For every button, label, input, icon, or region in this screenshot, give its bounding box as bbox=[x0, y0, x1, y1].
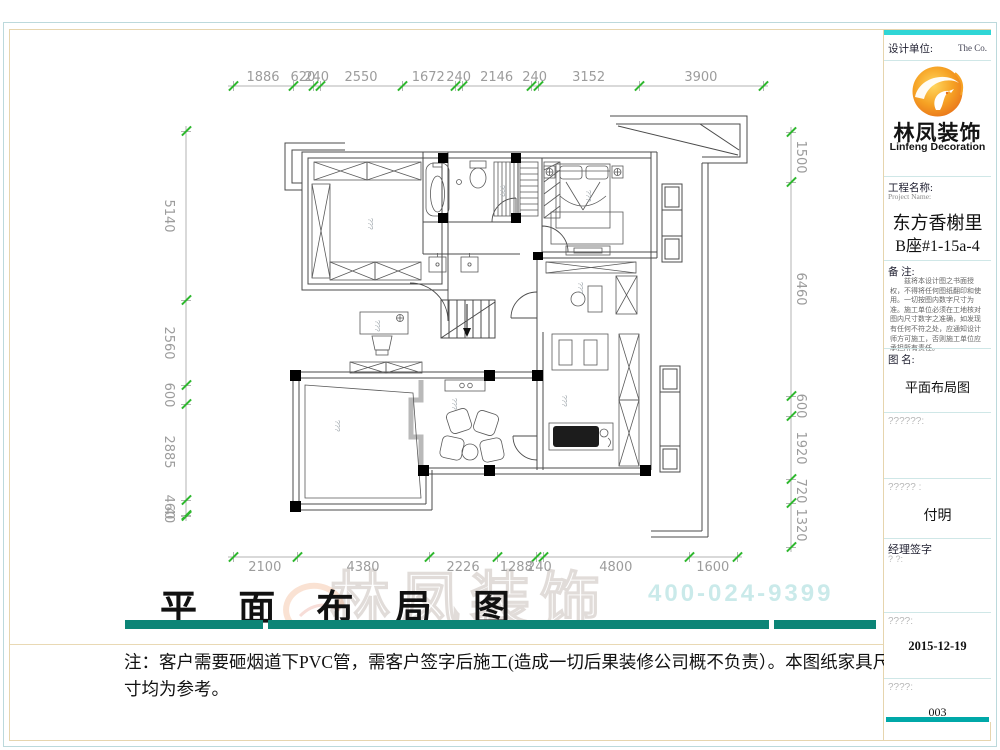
design-unit-label: 设计单位: bbox=[888, 41, 933, 56]
svg-text:???: ??? bbox=[584, 190, 591, 202]
design-unit-section: 设计单位: The Co. bbox=[884, 35, 991, 60]
logo-section: 林凤装饰 Linfeng Decoration bbox=[884, 60, 991, 177]
remark-section: 备 注: 兹将本设计图之书面授权，不得将任何图纸翻印和使用。一切按图内数字尺寸为… bbox=[884, 260, 991, 349]
svg-text:???: ??? bbox=[333, 420, 340, 432]
drawing-name-value: 平面布局图 bbox=[884, 377, 991, 396]
svg-text:???: ??? bbox=[373, 320, 380, 332]
field2-label: ????? : bbox=[888, 482, 921, 493]
manager-sub-label: ? ?: bbox=[888, 554, 903, 564]
svg-text:???: ??? bbox=[560, 395, 567, 407]
svg-text:???: ??? bbox=[450, 398, 457, 410]
designer-section: ????? : 付明 bbox=[884, 478, 991, 539]
date-section: ????: 2015-12-19 bbox=[884, 612, 991, 679]
title-underline-bar bbox=[125, 620, 263, 629]
designer-name: 付明 bbox=[884, 505, 991, 525]
remark-text: 兹将本设计图之书面授权，不得将任何图纸翻印和使用。一切按图内数字尺寸为准。施工单… bbox=[890, 277, 986, 354]
columns bbox=[290, 153, 651, 512]
drawing-name-section: 图 名: 平面布局图 bbox=[884, 348, 991, 413]
construction-note: 注：客户需要砸烟道下PVC管，需客户签字后施工(造成一切后果装修公司概不负责）。… bbox=[124, 649, 892, 703]
date-value: 2015-12-19 bbox=[884, 639, 991, 654]
date-label: ????: bbox=[888, 616, 913, 627]
cad-drawing-page: 林凤装饰 400-024-9399 bbox=[0, 0, 1000, 750]
number-label: ????: bbox=[888, 682, 913, 693]
svg-text:???: ??? bbox=[366, 218, 373, 230]
floor-plan-canvas: ??? ??? ??? ??? ??? ??? ??? ??? bbox=[0, 0, 1000, 750]
project-name-section: 工程名称: Project Name: 东方香榭里 B座#1-15a-4 bbox=[884, 176, 991, 261]
title-underline-bar bbox=[268, 620, 769, 629]
design-unit-right-text: The Co. bbox=[958, 43, 987, 53]
svg-text:???: ??? bbox=[576, 282, 583, 294]
drawing-name-label: 图 名: bbox=[888, 352, 915, 367]
linfeng-logo-icon bbox=[909, 63, 966, 120]
project-name-line2: B座#1-15a-4 bbox=[884, 232, 991, 256]
walls bbox=[285, 116, 747, 537]
field1-section: ??????: bbox=[884, 412, 991, 479]
field1-label: ??????: bbox=[888, 416, 924, 427]
titleblock-bottom-bar bbox=[886, 717, 989, 722]
title-block: 设计单位: The Co. 林凤装饰 Linfeng Decoration bbox=[884, 30, 991, 722]
project-label-en: Project Name: bbox=[888, 192, 931, 201]
manager-section: 经理签字 ? ?: bbox=[884, 538, 991, 613]
furniture bbox=[305, 161, 639, 498]
svg-text:???: ??? bbox=[498, 185, 505, 197]
logo-english-name: Linfeng Decoration bbox=[884, 141, 991, 153]
sheet-number-section: ????: 003 bbox=[884, 678, 991, 745]
title-underline-bar bbox=[774, 620, 876, 629]
